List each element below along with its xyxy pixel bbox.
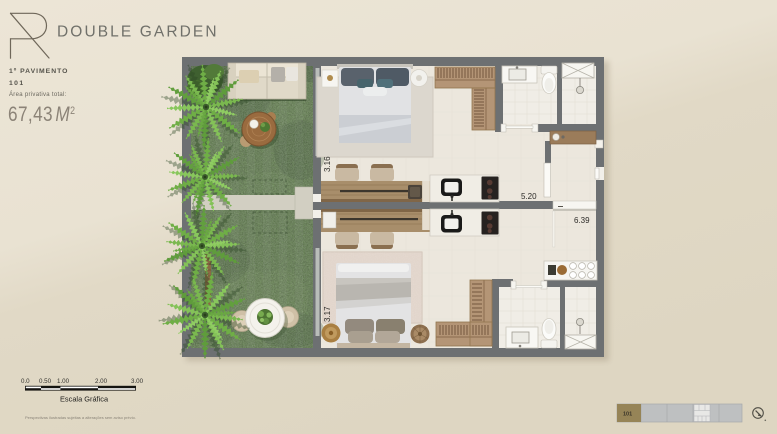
svg-text:5.20: 5.20	[521, 192, 537, 201]
svg-text:3.00: 3.00	[131, 378, 144, 385]
svg-text:0.50: 0.50	[39, 378, 52, 385]
svg-text:3.16: 3.16	[323, 156, 332, 172]
svg-text:Escala Gráfica: Escala Gráfica	[60, 395, 109, 404]
svg-text:1.00: 1.00	[57, 378, 70, 385]
svg-text:2.00: 2.00	[95, 378, 108, 385]
svg-text:6.39: 6.39	[574, 216, 590, 225]
svg-text:1º PAVIMENTO: 1º PAVIMENTO	[9, 68, 68, 75]
svg-text:Área privativa total:: Área privativa total:	[9, 91, 67, 98]
svg-text:67,43M2: 67,43M2	[8, 102, 75, 126]
svg-text:Perspectivas ilustradas sujeit: Perspectivas ilustradas sujeitas a alter…	[25, 415, 136, 420]
svg-text:DOUBLE GARDEN: DOUBLE GARDEN	[57, 24, 219, 41]
svg-text:101: 101	[9, 80, 25, 87]
svg-text:101: 101	[623, 412, 632, 418]
svg-text:0.0: 0.0	[21, 378, 30, 385]
svg-text:3.17: 3.17	[323, 306, 332, 322]
